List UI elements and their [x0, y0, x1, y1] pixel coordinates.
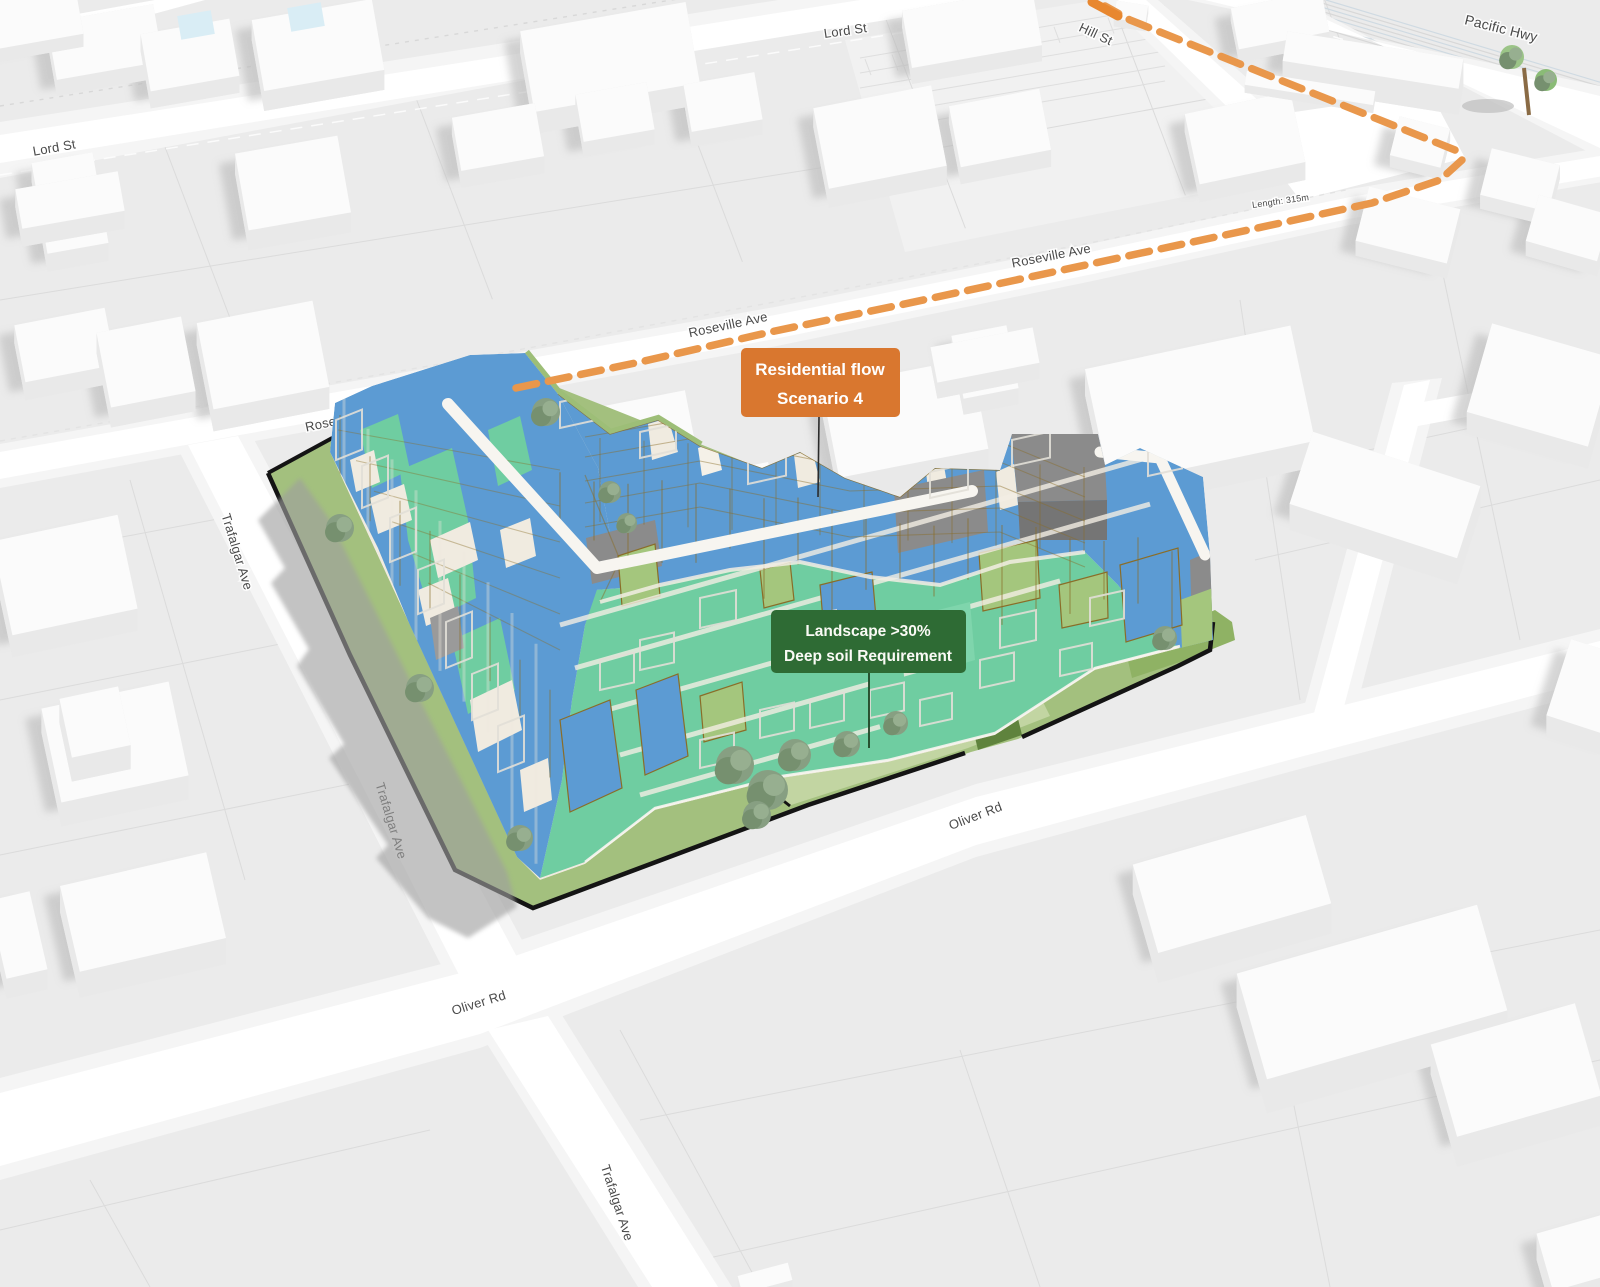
svg-text:Landscape >30%: Landscape >30%: [805, 623, 931, 640]
svg-text:Scenario 4: Scenario 4: [777, 389, 864, 408]
svg-text:Deep soil Requirement: Deep soil Requirement: [784, 648, 952, 665]
svg-text:Residential flow: Residential flow: [755, 360, 885, 379]
